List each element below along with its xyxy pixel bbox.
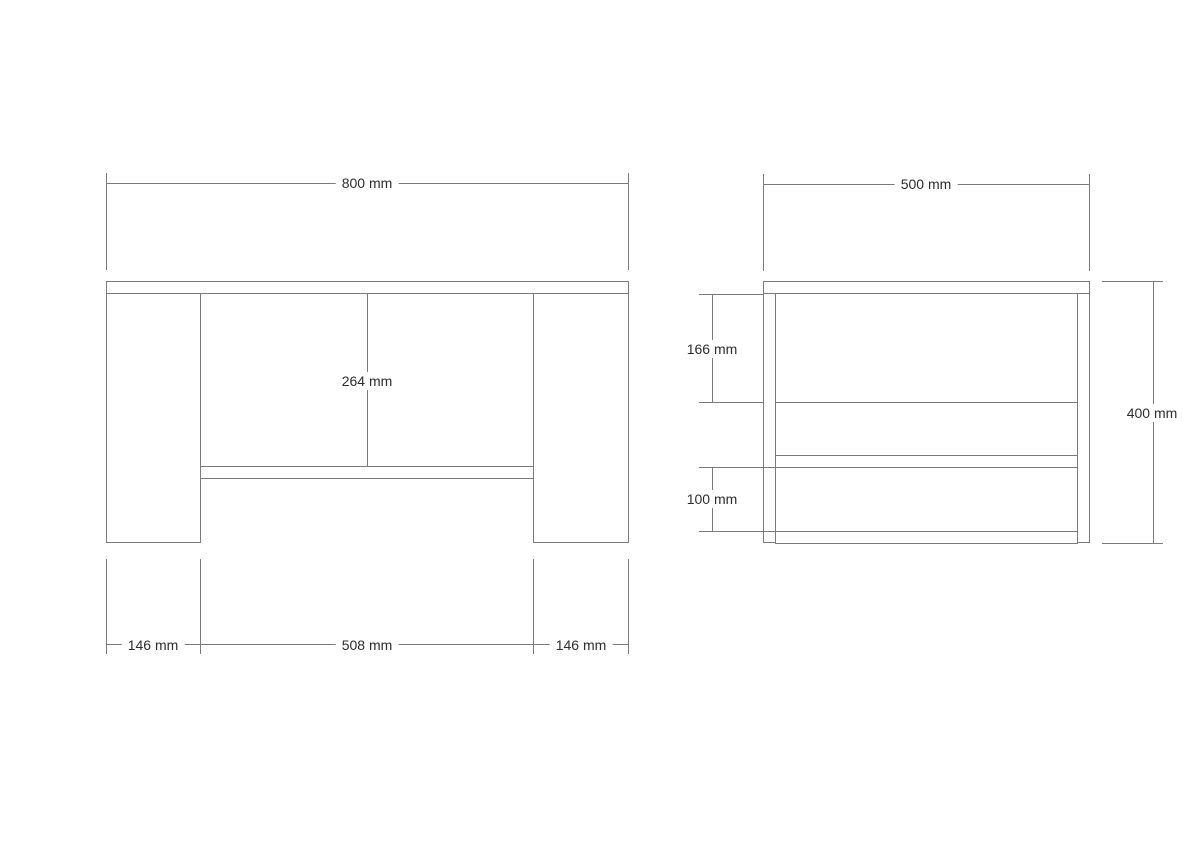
dim-extension-line [200,559,201,654]
dim-extension-line [1089,174,1090,271]
dim-tick [699,467,775,468]
dim-tick [699,294,763,295]
front-opening-height-dim-label: 264 mm [336,372,399,390]
dim-extension-line [533,559,534,654]
front-shelf [200,466,534,479]
side-mid-rail-line [775,402,1078,403]
side-right-panel [1077,293,1090,543]
dim-tick [699,402,763,403]
drawing-canvas: 800 mm 264 mm 146 mm 508 mm 146 mm 500 m… [0,0,1200,848]
side-left-panel [763,293,776,543]
side-depth-dim-label: 500 mm [895,175,958,193]
side-lower-opening-dim-label: 100 mm [681,490,744,508]
side-bottom-rail [775,531,1078,544]
front-left-leg [106,293,201,543]
side-tabletop [763,281,1090,294]
dim-extension-line [106,173,107,270]
dim-extension-line [106,559,107,654]
front-right-leg-dim-label: 146 mm [550,636,613,654]
side-shelf [775,455,1078,468]
dim-extension-line [763,174,764,271]
front-left-leg-dim-label: 146 mm [122,636,185,654]
dim-tick [699,531,775,532]
front-opening-width-dim-label: 508 mm [336,636,399,654]
side-upper-opening-dim-label: 166 mm [681,340,744,358]
dim-extension-line [628,559,629,654]
front-right-leg [533,293,629,543]
front-width-dim-label: 800 mm [336,174,399,192]
side-height-dim-label: 400 mm [1121,404,1184,422]
dim-extension-line [628,173,629,270]
